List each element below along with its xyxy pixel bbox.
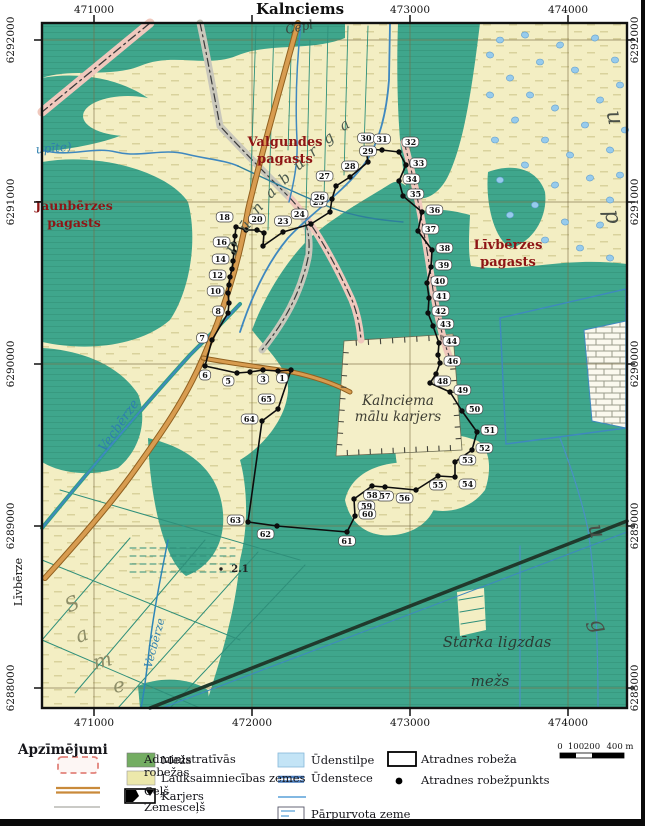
boundary-point xyxy=(259,418,264,423)
boundary-point-label: 63 xyxy=(230,515,242,525)
boundary-point xyxy=(202,363,207,368)
axis-label-left: 6291000 xyxy=(5,179,17,226)
boundary-point xyxy=(227,274,232,279)
legend-item-deposit-boundary: Atradnes robeža xyxy=(421,753,517,766)
quarry-label: Kalnciema xyxy=(361,393,434,409)
axis-label-right: 6291000 xyxy=(629,179,641,226)
scalebar-label: 200 xyxy=(584,742,600,752)
boundary-point-label: 8 xyxy=(215,306,221,316)
legend-item-quarry: Karjers xyxy=(161,790,204,803)
boundary-point-label: 31 xyxy=(376,134,387,144)
boundary-point-label: 56 xyxy=(399,493,411,503)
boundary-point xyxy=(226,282,231,287)
pond-dot xyxy=(496,37,503,43)
legend-item-watercourse: Ūdenstece xyxy=(311,772,373,785)
margin-label: Līvbērze xyxy=(12,558,25,606)
map-document: 1356781012141618202324252627282930313233… xyxy=(0,0,645,826)
boundary-point-label: 10 xyxy=(210,286,222,296)
boundary-point xyxy=(419,209,424,214)
legend-item-farmland: Lauksaimniecības zemes xyxy=(161,772,305,785)
boundary-point-label: 32 xyxy=(405,137,416,147)
boundary-point-label: 38 xyxy=(439,243,451,253)
map-landcover xyxy=(42,23,627,708)
scan-edge-right xyxy=(641,0,645,826)
boundary-point-label: 7 xyxy=(199,333,205,343)
boundary-point xyxy=(379,147,384,152)
boundary-point xyxy=(369,483,374,488)
boundary-point xyxy=(333,183,338,188)
boundary-point-label: 37 xyxy=(425,224,436,234)
pond-dot xyxy=(491,137,499,144)
boundary-point xyxy=(474,429,479,434)
pond-dot xyxy=(581,122,589,129)
boundary-point-label: 18 xyxy=(219,212,231,222)
deposit-point-symbol xyxy=(396,778,403,785)
boundary-point xyxy=(459,408,464,413)
scalebar-label: 400 m xyxy=(607,742,634,752)
boundary-point-label: 43 xyxy=(440,319,452,329)
boundary-point-label: 42 xyxy=(435,306,446,316)
legend-item-waterbody: Ūdenstilpe xyxy=(311,754,374,767)
boundary-point xyxy=(382,484,387,489)
boundary-point xyxy=(365,159,370,164)
boundary-point xyxy=(275,406,280,411)
boundary-point xyxy=(234,370,239,375)
axis-label-left: 6292000 xyxy=(5,17,17,64)
boundary-point xyxy=(344,529,349,534)
boundary-point xyxy=(436,340,441,345)
spot-height-label: 2.1 xyxy=(231,564,248,575)
boundary-point xyxy=(308,221,313,226)
pond-dot xyxy=(616,172,623,178)
pond-dot xyxy=(616,82,623,88)
boundary-point-label: 41 xyxy=(436,291,447,301)
boundary-point-label: 30 xyxy=(360,133,372,143)
boundary-point-label: 5 xyxy=(225,376,231,386)
legend-item-depos it-point: Atradnes robežpunkts xyxy=(421,774,550,787)
waterbody-symbol xyxy=(278,753,304,767)
boundary-point xyxy=(329,196,334,201)
boundary-point-label: 6 xyxy=(202,370,208,380)
pond-dot xyxy=(536,59,543,65)
axis-label-left: 6290000 xyxy=(5,341,17,388)
boundary-point-label: 39 xyxy=(438,260,450,270)
parish-jaunberzes: Jaunbērzes xyxy=(34,198,113,213)
boundary-point-label: 62 xyxy=(260,529,271,539)
boundary-point xyxy=(447,389,452,394)
boundary-point xyxy=(435,473,440,478)
boundary-point xyxy=(245,519,250,524)
scale-bar: 0100200400 m xyxy=(557,742,633,758)
pond-dot xyxy=(496,177,503,183)
boundary-point-label: 60 xyxy=(362,509,374,519)
axis-label-bottom: 474000 xyxy=(548,717,588,729)
forest-label: Stārka ligzdas xyxy=(443,633,552,651)
parish-jaunberzes: pagasts xyxy=(47,215,101,230)
boundary-point xyxy=(352,513,357,518)
axis-label-left: 6289000 xyxy=(5,503,17,550)
boundary-point-label: 57 xyxy=(379,491,390,501)
pond-dot xyxy=(576,245,583,251)
boundary-point-label: 46 xyxy=(447,356,459,366)
boundary-point-label: 50 xyxy=(469,404,481,414)
boundary-point xyxy=(428,264,433,269)
axis-label-bottom: 472000 xyxy=(232,717,272,729)
boundary-point xyxy=(415,228,420,233)
boundary-point-label: 1 xyxy=(279,373,285,383)
boundary-point-label: 52 xyxy=(479,443,490,453)
boundary-point-label: 35 xyxy=(410,189,421,199)
boundary-point-label: 51 xyxy=(484,425,495,435)
legend-item-marsh: Pārpurvota zeme xyxy=(311,808,411,821)
axis-label-top: 471000 xyxy=(74,4,114,16)
boundary-point xyxy=(430,323,435,328)
boundary-point xyxy=(288,367,293,372)
boundary-point-label: 65 xyxy=(261,394,272,404)
axis-label-right: 6288000 xyxy=(629,665,641,712)
boundary-point-label: 61 xyxy=(341,536,352,546)
boundary-point xyxy=(429,247,434,252)
pond-dot xyxy=(531,202,539,209)
axis-label-right: 6290000 xyxy=(629,341,641,388)
map-canvas: 1356781012141618202324252627282930313233… xyxy=(0,0,645,826)
admin-boundary-symbol xyxy=(58,757,98,773)
axis-label-bottom: 471000 xyxy=(74,717,114,729)
boundary-point xyxy=(351,496,356,501)
legend-item-forest: Mežs xyxy=(161,754,192,767)
boundary-point xyxy=(427,380,432,385)
axis-label-top: 473000 xyxy=(390,4,430,16)
town-label: Kalnciems xyxy=(256,0,344,18)
axis-label-top: 474000 xyxy=(548,4,588,16)
boundary-point-label: 55 xyxy=(432,480,443,490)
pond-dot xyxy=(571,67,579,74)
boundary-point-label: 14 xyxy=(215,254,227,264)
boundary-point xyxy=(396,149,401,154)
boundary-point-label: 40 xyxy=(434,276,446,286)
boundary-point xyxy=(254,227,259,232)
boundary-point xyxy=(280,229,285,234)
boundary-point xyxy=(260,367,265,372)
forest-label2: mežs xyxy=(471,672,510,690)
boundary-point-label: 53 xyxy=(462,455,474,465)
boundary-point xyxy=(347,174,352,179)
boundary-point-label: 44 xyxy=(446,336,458,346)
boundary-point-label: 48 xyxy=(437,376,449,386)
boundary-point-label: 64 xyxy=(244,414,256,424)
boundary-point xyxy=(452,474,457,479)
boundary-point-label: 29 xyxy=(362,146,374,156)
boundary-point xyxy=(274,523,279,528)
boundary-point-label: 24 xyxy=(294,209,306,219)
boundary-point xyxy=(437,360,442,365)
boundary-point xyxy=(452,459,457,464)
boundary-point xyxy=(232,233,237,238)
boundary-point xyxy=(230,258,235,263)
boundary-point-label: 33 xyxy=(413,158,425,168)
boundary-point xyxy=(225,310,230,315)
axis-label-right: 6289000 xyxy=(629,503,641,550)
boundary-point-label: 28 xyxy=(344,161,356,171)
boundary-point xyxy=(400,193,405,198)
parish-livberzes: Līvbērzes xyxy=(474,238,543,253)
boundary-point xyxy=(435,352,440,357)
parish-livberzes: pagasts xyxy=(480,255,536,270)
boundary-point xyxy=(424,280,429,285)
boundary-point-label: 54 xyxy=(462,479,474,489)
boundary-point xyxy=(396,178,401,183)
boundary-point xyxy=(413,487,418,492)
axis-label-left: 6288000 xyxy=(5,665,17,712)
boundary-point-label: 36 xyxy=(429,205,441,215)
boundary-point xyxy=(469,447,474,452)
boundary-point xyxy=(403,162,408,167)
pond-dot xyxy=(611,57,619,64)
boundary-point xyxy=(426,295,431,300)
boundary-point xyxy=(226,300,231,305)
quarry-label: mālu karjers xyxy=(355,409,441,425)
boundary-point xyxy=(247,369,252,374)
boundary-point xyxy=(229,266,234,271)
boundary-point-label: 34 xyxy=(406,174,418,184)
boundary-point xyxy=(209,337,214,342)
boundary-point-label: 3 xyxy=(260,374,266,384)
boundary-point-label: 49 xyxy=(457,385,469,395)
spot-height-dot xyxy=(219,567,222,570)
deposit-boundary-symbol xyxy=(388,752,416,766)
boundary-point-label: 12 xyxy=(212,270,223,280)
boundary-point xyxy=(261,230,266,235)
boundary-point xyxy=(225,290,230,295)
boundary-point xyxy=(327,209,332,214)
boundary-point-label: 26 xyxy=(314,192,326,202)
boundary-point-label: 27 xyxy=(319,171,330,181)
boundary-point-label: 58 xyxy=(366,490,378,500)
boundary-point-label: 23 xyxy=(277,216,289,226)
scalebar-label: 100 xyxy=(568,742,584,752)
axis-label-bottom: 473000 xyxy=(390,717,430,729)
scalebar-label: 0 xyxy=(557,742,562,752)
axis-label-right: 6292000 xyxy=(629,17,641,64)
pond-dot xyxy=(541,137,549,144)
boundary-point xyxy=(260,243,265,248)
legend-title: Apzīmējumi xyxy=(18,744,108,757)
boundary-point xyxy=(425,310,430,315)
